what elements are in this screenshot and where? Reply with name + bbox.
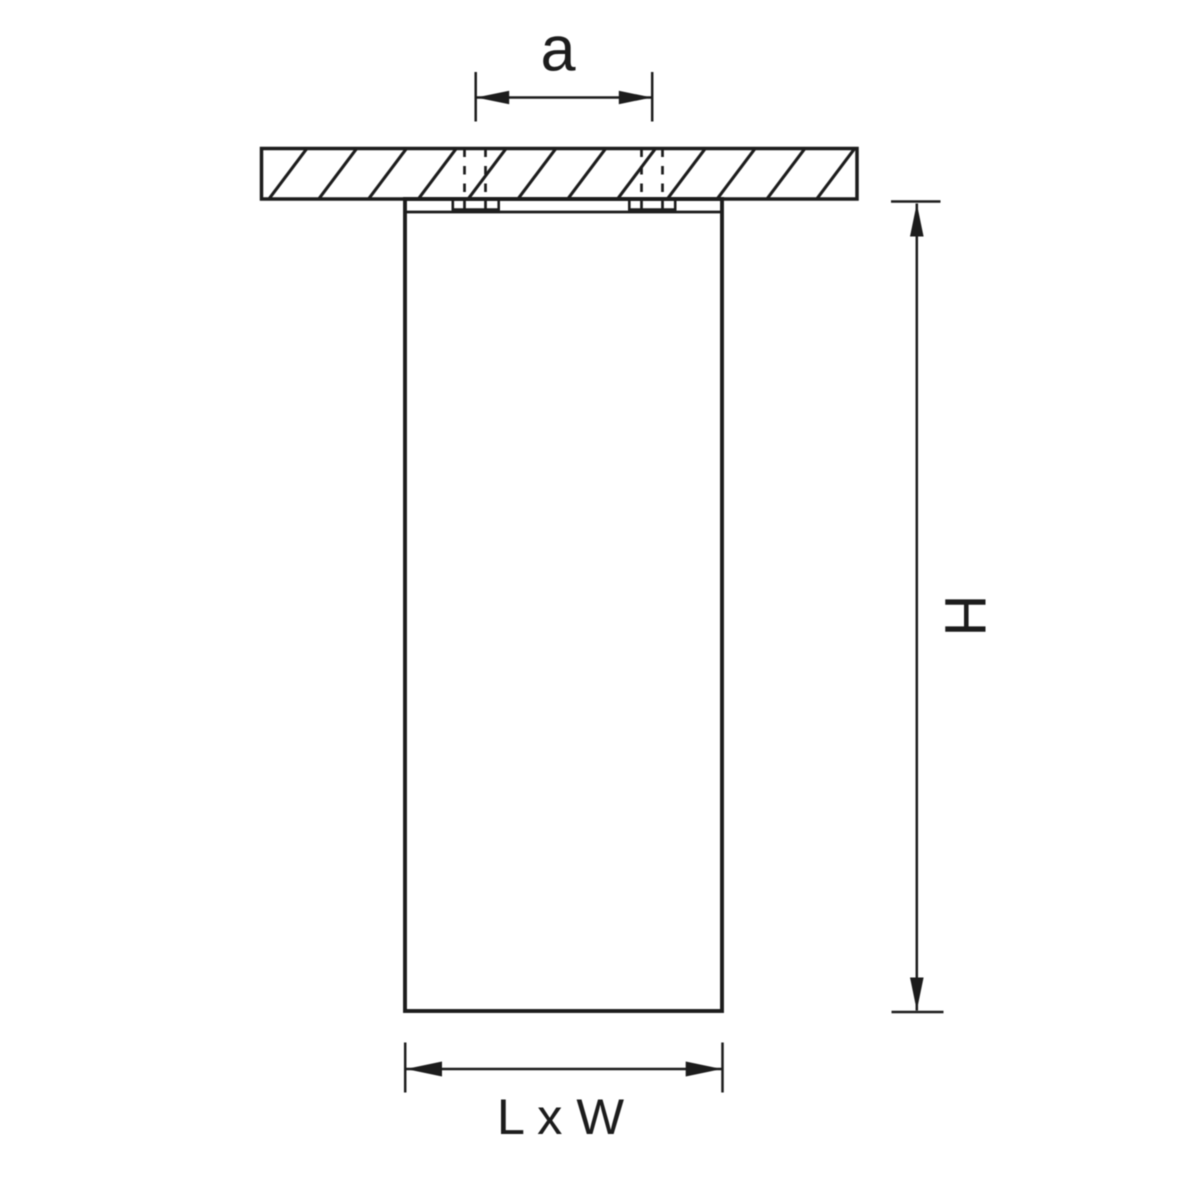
svg-text:a: a	[540, 15, 576, 85]
svg-text:L x W: L x W	[497, 1088, 625, 1145]
svg-text:H: H	[933, 595, 998, 637]
